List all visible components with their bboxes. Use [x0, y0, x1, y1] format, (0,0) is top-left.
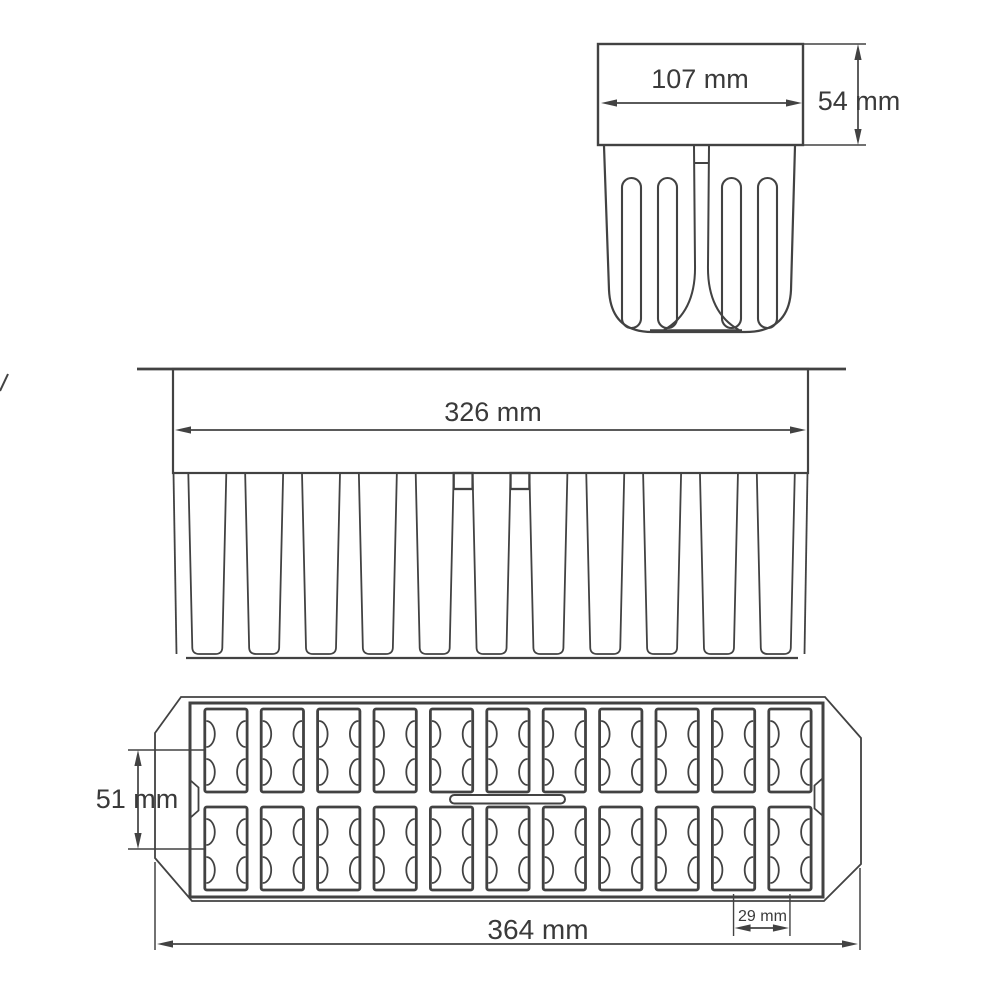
drawing-canvas: 107 mm 54 mm 326 mm 51 mm 29 mm 364 mm	[0, 0, 1000, 1000]
stray-edge-mark	[0, 374, 8, 391]
dim-label-front-width: 326 mm	[444, 397, 542, 427]
dim-label-column-pitch: 29 mm	[738, 908, 787, 925]
dim-label-unit-width: 107 mm	[651, 64, 749, 94]
dim-label-unit-height: 54 mm	[818, 86, 901, 116]
dim-label-row-pitch: 51 mm	[96, 784, 179, 814]
dim-label-overall-length: 364 mm	[487, 914, 588, 945]
popsicle-mold-technical-drawing: 107 mm 54 mm 326 mm 51 mm 29 mm 364 mm	[0, 0, 1000, 1000]
